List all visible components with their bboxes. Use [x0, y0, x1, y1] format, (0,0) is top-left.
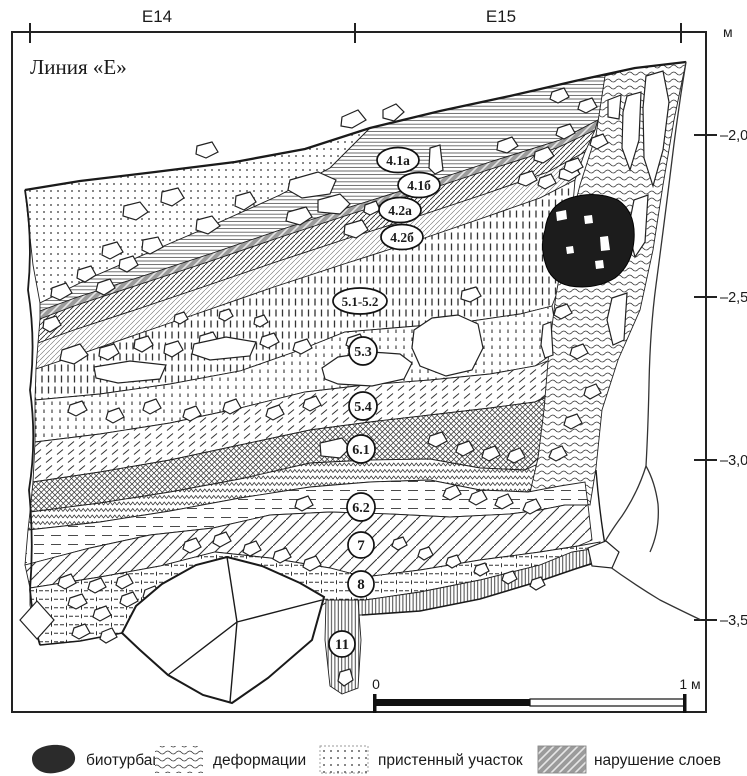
svg-text:11: 11 [335, 637, 349, 653]
legend-item-wall-zone: пристенный участок [320, 746, 523, 773]
bioturbation-swatch-icon [32, 745, 75, 773]
layer-label-6-1: 6.1 [347, 435, 375, 463]
layer-label-4-1a: 4.1а [377, 148, 419, 173]
svg-text:6.2: 6.2 [352, 501, 370, 516]
depth-unit-label: м [723, 24, 733, 40]
layer-disturbance-swatch-icon [538, 746, 586, 773]
legend-item-layer-disturbance: нарушение слоев [538, 746, 721, 773]
layer-label-11: 11 [329, 631, 355, 657]
svg-text:6.1: 6.1 [352, 443, 370, 458]
stratigraphic-section-figure: E14 E15 м –2,0 –2,5 –3,0 –3,5 Линия «Е» [0, 0, 747, 776]
bioturbation-blob [543, 194, 635, 287]
grid-label-e14: E14 [142, 7, 172, 26]
wall-contour-bulge-left [600, 466, 701, 620]
svg-text:4.1а: 4.1а [386, 153, 410, 168]
layer-label-4-2b: 4.2б [381, 225, 423, 250]
wall-zone-swatch-icon [320, 746, 368, 773]
scale-one-meter-label: 1 м [679, 676, 700, 692]
svg-text:5.4: 5.4 [354, 400, 372, 415]
wall-contour-bulge-right [646, 466, 658, 552]
depth-ruler: –2,0 –2,5 –3,0 –3,5 [694, 128, 747, 629]
large-rock-5-3-right [412, 315, 483, 376]
layer-label-5-4: 5.4 [349, 392, 377, 420]
legend-item-deformations: деформации [155, 746, 306, 773]
grid-label-e15: E15 [486, 7, 516, 26]
layer-label-5-1-5-2: 5.1-5.2 [333, 288, 387, 314]
depth-label-3-0: –3,0 [720, 453, 747, 469]
svg-text:5.3: 5.3 [354, 345, 372, 360]
legend-label-deformations: деформации [213, 752, 306, 769]
layer-label-4-2a: 4.2а [379, 198, 421, 223]
depth-label-2-0: –2,0 [720, 128, 747, 144]
scale-zero-label: 0 [372, 676, 380, 692]
layer-label-4-1b: 4.1б [398, 173, 440, 198]
svg-text:4.2а: 4.2а [388, 203, 412, 218]
legend-label-wall-zone: пристенный участок [378, 752, 523, 769]
svg-text:5.1-5.2: 5.1-5.2 [342, 294, 379, 309]
layer-label-8: 8 [348, 571, 374, 597]
layer-label-5-3: 5.3 [349, 337, 377, 365]
section-title: Линия «Е» [30, 55, 127, 79]
layer-label-7: 7 [348, 532, 374, 558]
layer-label-6-2: 6.2 [347, 493, 375, 521]
deformations-swatch-icon [155, 746, 203, 773]
svg-text:7: 7 [357, 538, 365, 554]
scale-bar: 0 1 м [372, 676, 701, 713]
depth-label-3-5: –3,5 [720, 613, 747, 629]
svg-text:4.2б: 4.2б [390, 230, 414, 245]
svg-text:4.1б: 4.1б [407, 178, 431, 193]
legend-label-layer-disturbance: нарушение слоев [594, 752, 721, 769]
depth-label-2-5: –2,5 [720, 290, 747, 306]
section-drawing-svg: E14 E15 м –2,0 –2,5 –3,0 –3,5 Линия «Е» [0, 0, 747, 776]
legend: биотурбации деформации пристенный участо… [32, 745, 721, 773]
svg-text:8: 8 [357, 577, 365, 593]
